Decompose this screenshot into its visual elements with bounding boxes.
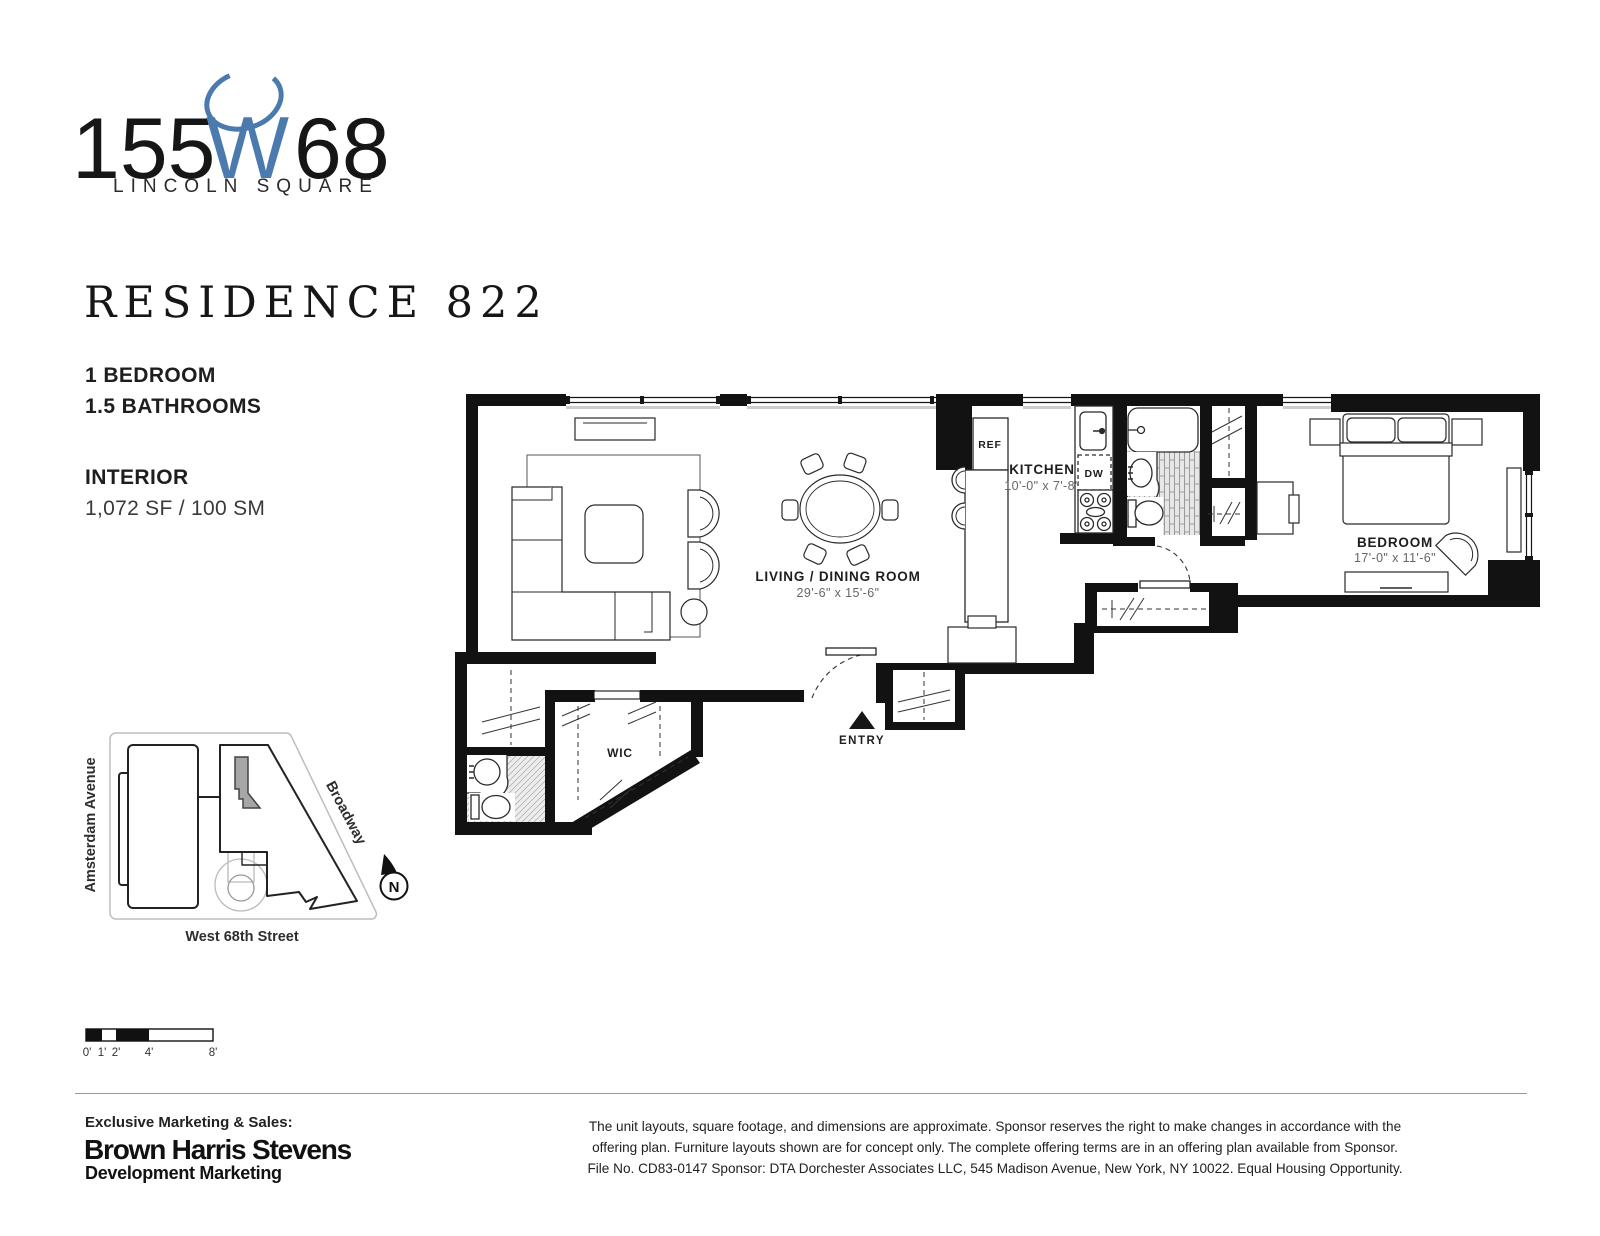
scale-bar: 0' 1' 2' 4' 8' bbox=[80, 1026, 240, 1062]
page-title: RESIDENCE 822 bbox=[84, 278, 549, 328]
desk bbox=[948, 627, 1016, 663]
spec-bathrooms: 1.5 BATHROOMS bbox=[85, 395, 261, 419]
powder-sink bbox=[474, 759, 500, 785]
disclaimer-line-3: File No. CD83-0147 Sponsor: DTA Dorchest… bbox=[545, 1158, 1445, 1179]
site-map: Amsterdam Avenue Broadway West 68th Stre… bbox=[70, 705, 420, 960]
scale-2: 2' bbox=[112, 1047, 121, 1059]
wic-label: WIC bbox=[607, 746, 633, 760]
bath-sink bbox=[1130, 459, 1152, 487]
window-bedroom-right bbox=[1524, 471, 1534, 560]
floorplan-sheet: 155 W 68 LINCOLN SQUARE RESIDENCE 822 1 … bbox=[0, 0, 1600, 1236]
window-living-1 bbox=[566, 395, 720, 409]
armchair bbox=[688, 490, 719, 537]
entry-door-leaf bbox=[826, 648, 876, 655]
corridor-furniture bbox=[948, 616, 1016, 663]
living-room-dims: 29'-6" x 15'-6" bbox=[797, 586, 880, 600]
entry-label: ENTRY bbox=[839, 735, 885, 747]
side-table bbox=[681, 599, 707, 625]
scale-0: 0' bbox=[83, 1047, 92, 1059]
footer-divider bbox=[75, 1093, 1527, 1094]
toilet-icon bbox=[1135, 501, 1163, 525]
dining-set bbox=[782, 452, 898, 566]
powder-toilet-tank bbox=[471, 795, 479, 819]
street-west68: West 68th Street bbox=[185, 929, 299, 945]
scale-4: 4' bbox=[145, 1047, 154, 1059]
street-broadway: Broadway bbox=[322, 779, 369, 848]
window-bench bbox=[1507, 468, 1521, 552]
kitchen-island bbox=[965, 470, 1008, 622]
legal-disclaimer: The unit layouts, square footage, and di… bbox=[545, 1116, 1445, 1179]
ref-label: REF bbox=[978, 439, 1001, 451]
pillow bbox=[1398, 418, 1446, 442]
scale-1: 1' bbox=[98, 1047, 107, 1059]
dresser bbox=[1345, 572, 1448, 592]
spec-bedrooms: 1 BEDROOM bbox=[85, 364, 216, 388]
dw-label: DW bbox=[1084, 468, 1103, 480]
logo-tagline: LINCOLN SQUARE bbox=[113, 176, 379, 198]
nightstand bbox=[1310, 419, 1340, 445]
north-label: N bbox=[389, 879, 400, 896]
bedroom-console bbox=[1257, 482, 1293, 534]
bath-door-leaf bbox=[1140, 581, 1190, 588]
kitchen-dims: 10'-0" x 7'-8" bbox=[1004, 479, 1080, 493]
coffee-table bbox=[585, 505, 643, 563]
street-amsterdam: Amsterdam Avenue bbox=[83, 757, 99, 892]
disclaimer-line-1: The unit layouts, square footage, and di… bbox=[545, 1116, 1445, 1137]
scale-labels: 0' 1' 2' 4' 8' bbox=[83, 1047, 218, 1059]
dining-table bbox=[800, 475, 880, 543]
kitchen-label: KITCHEN bbox=[1009, 462, 1075, 477]
bedroom-furniture bbox=[1257, 414, 1521, 592]
disclaimer-line-2: offering plan. Furniture layouts shown a… bbox=[545, 1137, 1445, 1158]
tv-icon bbox=[1289, 495, 1299, 523]
pillow bbox=[1347, 418, 1395, 442]
brokerage-division: Development Marketing bbox=[85, 1163, 282, 1184]
entry-arrow bbox=[849, 711, 875, 729]
wall-openings bbox=[893, 583, 1209, 722]
scale-8: 8' bbox=[209, 1047, 218, 1059]
wic-door bbox=[594, 691, 640, 699]
bed-fold bbox=[1340, 443, 1452, 456]
floor-plan: LIVING / DINING ROOM 29'-6" x 15'-6" KIT… bbox=[450, 385, 1545, 845]
living-furniture bbox=[512, 418, 719, 640]
armchair bbox=[688, 542, 719, 589]
bedroom-label: BEDROOM bbox=[1357, 535, 1433, 550]
bedroom-dims: 17'-0" x 11'-6" bbox=[1354, 551, 1436, 565]
site-courtyard bbox=[215, 852, 267, 911]
corner-chair bbox=[1436, 525, 1487, 576]
tv-console bbox=[575, 418, 655, 440]
exclusive-sales-label: Exclusive Marketing & Sales: bbox=[85, 1114, 293, 1131]
powder-toilet-icon bbox=[482, 796, 510, 819]
spec-interior-label: INTERIOR bbox=[85, 466, 189, 490]
nightstand bbox=[1452, 419, 1482, 445]
window-kitchen bbox=[1023, 395, 1071, 409]
brokerage-logo: Brown Harris Stevens bbox=[84, 1134, 351, 1166]
north-arrow-icon: N bbox=[381, 854, 408, 900]
living-room-label: LIVING / DINING ROOM bbox=[755, 569, 920, 584]
window-living-2 bbox=[747, 395, 936, 409]
spec-interior-area: 1,072 SF / 100 SM bbox=[85, 497, 265, 521]
entry-door-swing bbox=[812, 653, 876, 698]
desk-chair bbox=[968, 616, 996, 628]
bath-door-swing bbox=[1157, 546, 1190, 582]
window-bedroom-top bbox=[1283, 395, 1331, 409]
